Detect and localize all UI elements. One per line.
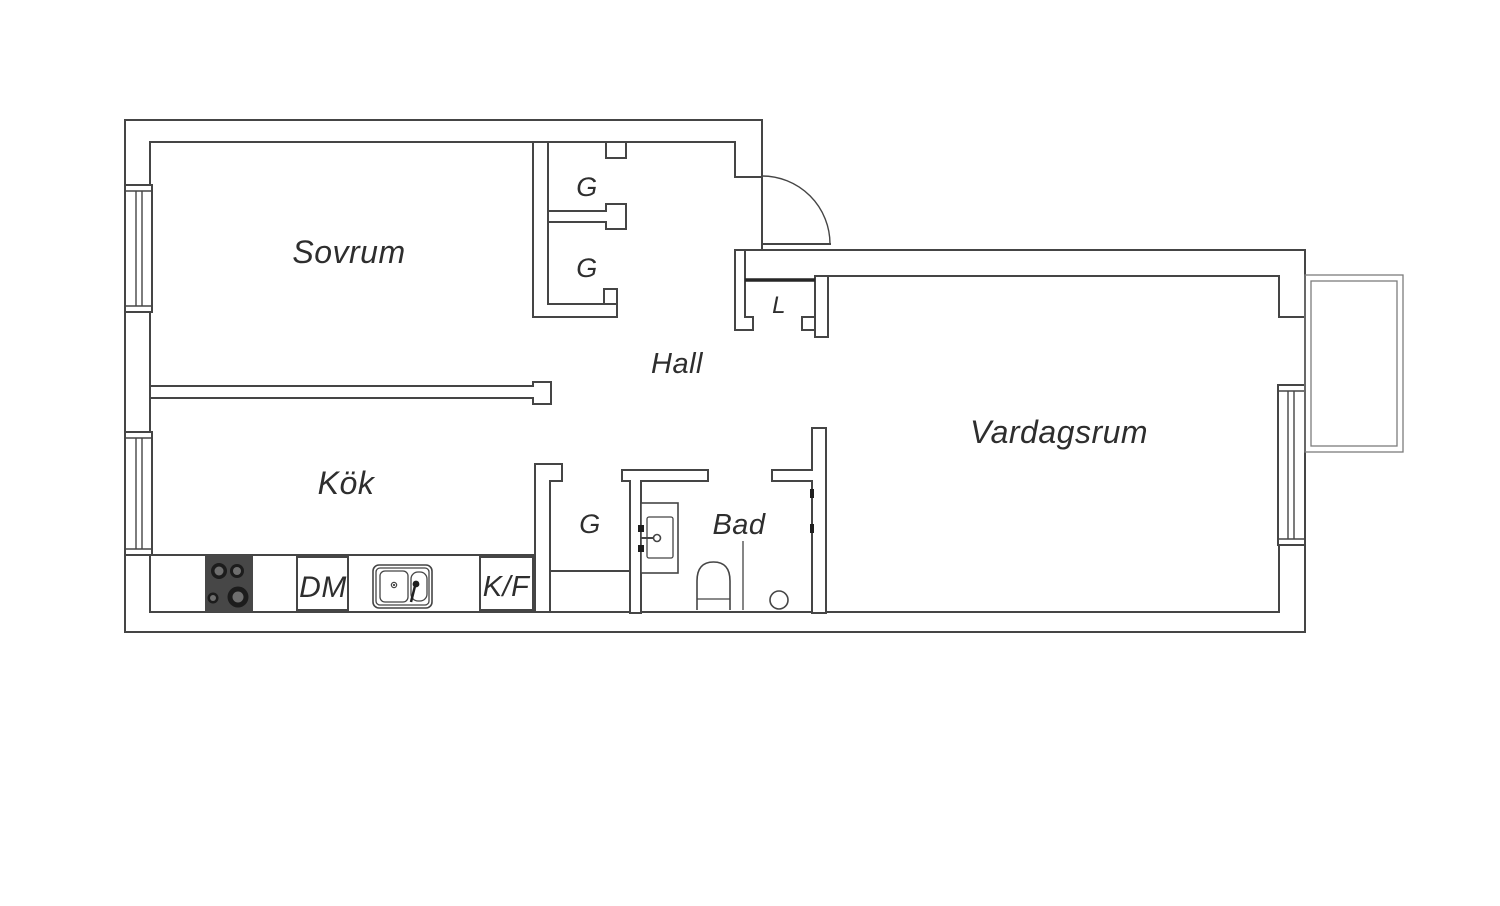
- floor-drain-icon: [770, 591, 788, 609]
- balcony-icon: [1305, 275, 1403, 452]
- stove-icon: [205, 555, 253, 612]
- linen-closet-right-foot: [802, 317, 815, 330]
- toilet-icon: [697, 562, 730, 610]
- top-inner-wall: [150, 142, 762, 177]
- wardrobe2-door-jamb: [604, 289, 617, 304]
- livingroom-window-icon: [1278, 385, 1305, 545]
- dishwasher-label: DM: [299, 571, 347, 604]
- bedroom-label: Sovrum: [292, 234, 405, 270]
- linen-closet-label: L: [772, 292, 786, 319]
- hall-wardrobe-label: G: [579, 509, 601, 539]
- kitchen-right-wall: [535, 464, 562, 612]
- livingroom-label: Vardagsrum: [970, 414, 1148, 450]
- fridge-freezer-label: K/F: [483, 571, 531, 603]
- wardrobe1-door-jamb: [606, 142, 626, 158]
- entrance-door-icon: [762, 176, 830, 244]
- door-hinge-mark-lower: [810, 524, 814, 533]
- kitchen-window-icon: [125, 432, 152, 555]
- linen-closet-right-wall: [815, 276, 828, 337]
- door-swing-arc: [762, 176, 830, 244]
- interior-walls: [150, 142, 828, 613]
- bedroom-window-icon: [125, 185, 152, 312]
- hall-label: Hall: [651, 348, 704, 380]
- door-hinge-mark-upper: [810, 489, 814, 498]
- wardrobe2-label: G: [576, 253, 598, 283]
- kitchen-label: Kök: [318, 465, 376, 501]
- floorplan-page: Sovrum Kök Hall Vardagsrum Bad G G G L D…: [0, 0, 1500, 906]
- bathroom-fixtures: [638, 489, 814, 610]
- wardrobe1-label: G: [576, 172, 598, 202]
- bedroom-kitchen-divider-wall: [150, 382, 551, 404]
- bathroom-right-wall: [772, 428, 826, 613]
- wardrobe-divider-wall: [548, 204, 626, 229]
- right-inner-wall-step: [1279, 276, 1305, 317]
- linen-closet-left-wall: [735, 250, 753, 330]
- bathroom-label: Bad: [712, 509, 765, 541]
- floorplan-svg: Sovrum Kök Hall Vardagsrum Bad G G G L D…: [0, 0, 1500, 906]
- sink-icon: [373, 565, 432, 608]
- washbasin-icon: [638, 503, 678, 573]
